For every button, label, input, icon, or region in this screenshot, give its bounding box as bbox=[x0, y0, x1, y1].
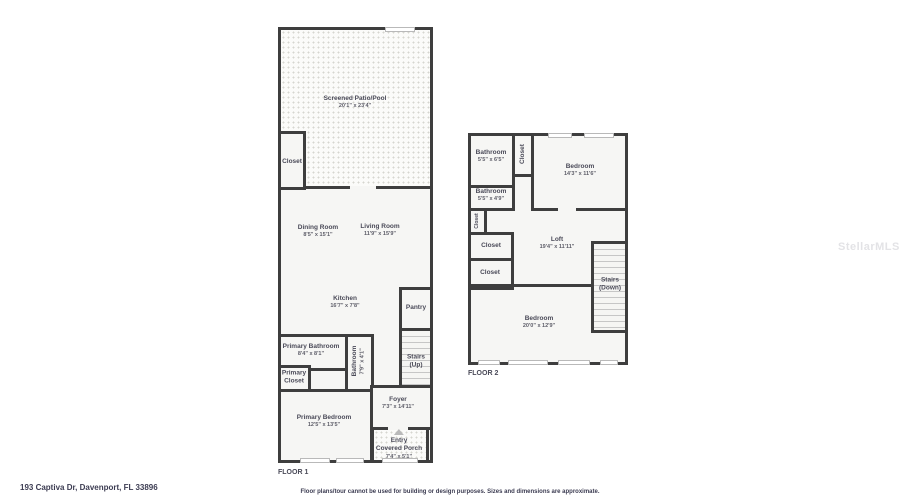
bedroom-right-label: Bedroom 14'3" x 11'6" bbox=[564, 163, 596, 179]
door-opening bbox=[558, 208, 576, 213]
room-name: Covered Porch bbox=[376, 445, 422, 453]
room-dims: 7'9" x 4'1" bbox=[360, 346, 367, 377]
closet-small-label-vertical: Closet bbox=[474, 213, 481, 228]
room-name: Primary Bathroom bbox=[283, 343, 340, 351]
entry-direction-icon bbox=[394, 429, 404, 435]
primary-bathroom-label: Primary Bathroom 8'4" x 8'1" bbox=[283, 343, 340, 359]
window bbox=[300, 458, 330, 463]
dining-room-label: Dining Room 8'5" x 15'1" bbox=[298, 224, 338, 240]
room-name: Closet bbox=[481, 242, 501, 250]
entry-porch-label: Entry Covered Porch 7'4" x 5'1" bbox=[376, 429, 422, 461]
window bbox=[385, 27, 415, 32]
stairs-down-label: Stairs (Down) bbox=[599, 277, 621, 294]
bathroom-mid-label: Bathroom 5'5" x 4'9" bbox=[476, 188, 507, 204]
room-name: Bedroom bbox=[564, 163, 596, 171]
stairs-direction: (Up) bbox=[407, 362, 425, 370]
room-dims: 8'4" x 8'1" bbox=[283, 352, 340, 359]
window bbox=[548, 133, 572, 138]
living-room-label: Living Room 11'9" x 15'9" bbox=[360, 223, 399, 239]
room-dims: 11'9" x 15'9" bbox=[360, 232, 399, 239]
closet-label: Closet bbox=[282, 158, 302, 166]
room-name: Closet bbox=[474, 213, 481, 228]
room-name: Stairs bbox=[599, 277, 621, 285]
stairs-up-label: Stairs (Up) bbox=[407, 354, 425, 371]
room-dims: 16'7" x 7'8" bbox=[330, 304, 359, 311]
room-name: Kitchen bbox=[330, 295, 359, 303]
window bbox=[336, 458, 364, 463]
floorplan-page: Screened Patio/Pool 20'1" x 23'4" Closet… bbox=[0, 0, 900, 500]
room-dims: 12'5" x 13'5" bbox=[297, 423, 352, 430]
room-name: Foyer bbox=[382, 396, 414, 404]
room-dims: 14'3" x 11'6" bbox=[564, 172, 596, 179]
room-dims: 7'4" x 5'1" bbox=[376, 454, 422, 461]
window bbox=[600, 360, 618, 365]
closet-top-label-vertical: Closet bbox=[519, 144, 527, 164]
room-dims: 8'5" x 15'1" bbox=[298, 233, 338, 240]
room-name: Bedroom bbox=[523, 315, 555, 323]
room-dims: 5'5" x 6'5" bbox=[476, 158, 507, 165]
loft-label: Loft 19'4" x 11'11" bbox=[540, 236, 575, 252]
room-name: Loft bbox=[540, 236, 575, 244]
stellar-mls-watermark: StellarMLS bbox=[838, 241, 900, 253]
primary-closet-label: Primary Closet bbox=[282, 370, 306, 387]
patio-label: Screened Patio/Pool 20'1" x 23'4" bbox=[324, 95, 387, 111]
room-name: Bathroom bbox=[476, 149, 507, 157]
room-name: Dining Room bbox=[298, 224, 338, 232]
bedroom-top-wall bbox=[468, 284, 594, 287]
room-name: Primary bbox=[282, 370, 306, 378]
floor1-tag: FLOOR 1 bbox=[278, 469, 308, 476]
room-name: Closet bbox=[282, 158, 302, 166]
room-name: Primary Bedroom bbox=[297, 414, 352, 422]
pantry-label: Pantry bbox=[406, 304, 426, 312]
room-name: Screened Patio/Pool bbox=[324, 95, 387, 103]
room-dims: 20'1" x 23'4" bbox=[324, 104, 387, 111]
room-dims: 7'3" x 14'11" bbox=[382, 405, 414, 412]
room-name: Pantry bbox=[406, 304, 426, 312]
room-name: Closet bbox=[480, 269, 500, 277]
bathroom-label-vertical: Bathroom 7'9" x 4'1" bbox=[351, 346, 367, 377]
primary-bedroom-label: Primary Bedroom 12'5" x 13'5" bbox=[297, 414, 352, 430]
window bbox=[558, 360, 590, 365]
floor2-tag: FLOOR 2 bbox=[468, 370, 498, 377]
room-name: Closet bbox=[519, 144, 527, 164]
room-dims: 20'0" x 12'9" bbox=[523, 324, 555, 331]
room-dims: 5'5" x 4'9" bbox=[476, 197, 507, 204]
bedroom-main-label: Bedroom 20'0" x 12'9" bbox=[523, 315, 555, 331]
room-name: Living Room bbox=[360, 223, 399, 231]
room-name: Entry bbox=[376, 437, 422, 445]
window bbox=[508, 360, 548, 365]
kitchen-label: Kitchen 16'7" x 7'8" bbox=[330, 295, 359, 311]
disclaimer-text: Floor plans/tour cannot be used for buil… bbox=[0, 489, 900, 495]
foyer-label: Foyer 7'3" x 14'11" bbox=[382, 396, 414, 412]
door-opening bbox=[350, 186, 376, 191]
room-dims: 19'4" x 11'11" bbox=[540, 245, 575, 252]
room-name: Stairs bbox=[407, 354, 425, 362]
room-name: Closet bbox=[282, 378, 306, 386]
window bbox=[584, 133, 614, 138]
room-name: Bathroom bbox=[351, 346, 359, 377]
window bbox=[478, 360, 500, 365]
bathroom-top-label: Bathroom 5'5" x 6'5" bbox=[476, 149, 507, 165]
closet-mid-label: Closet bbox=[481, 242, 501, 250]
closet-low-label: Closet bbox=[480, 269, 500, 277]
stairs-direction: (Down) bbox=[599, 285, 621, 293]
room-name: Bathroom bbox=[476, 188, 507, 196]
